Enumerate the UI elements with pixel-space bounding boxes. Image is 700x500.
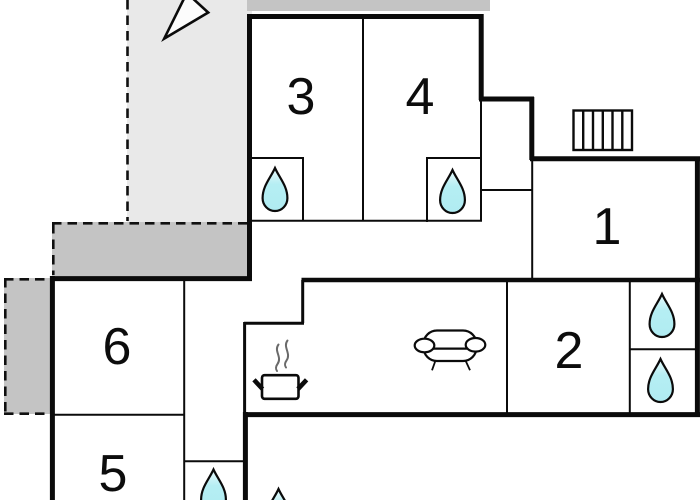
svg-text:4: 4 — [406, 68, 435, 126]
svg-text:5: 5 — [99, 445, 128, 500]
svg-text:1: 1 — [593, 198, 622, 256]
svg-text:3: 3 — [287, 68, 316, 126]
svg-text:6: 6 — [103, 318, 132, 376]
svg-text:2: 2 — [555, 322, 584, 380]
